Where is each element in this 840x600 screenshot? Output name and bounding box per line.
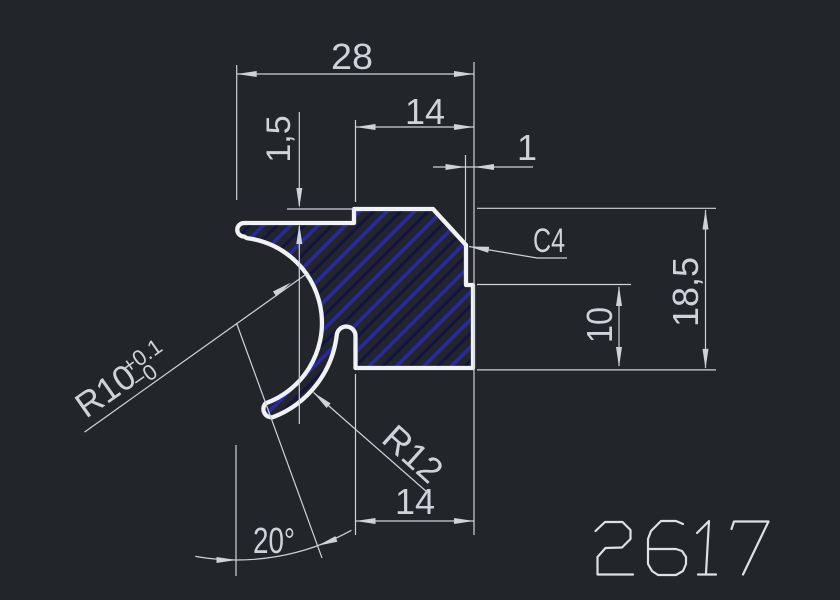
svg-text:14: 14 [405,91,445,132]
svg-text:10: 10 [579,307,620,343]
svg-text:14: 14 [395,481,435,522]
svg-text:20°: 20° [253,520,295,561]
svg-text:C4: C4 [533,222,565,260]
svg-text:28: 28 [331,36,373,77]
svg-text:1,5: 1,5 [260,115,298,162]
svg-text:18,5: 18,5 [665,257,706,327]
svg-text:1: 1 [517,127,537,168]
